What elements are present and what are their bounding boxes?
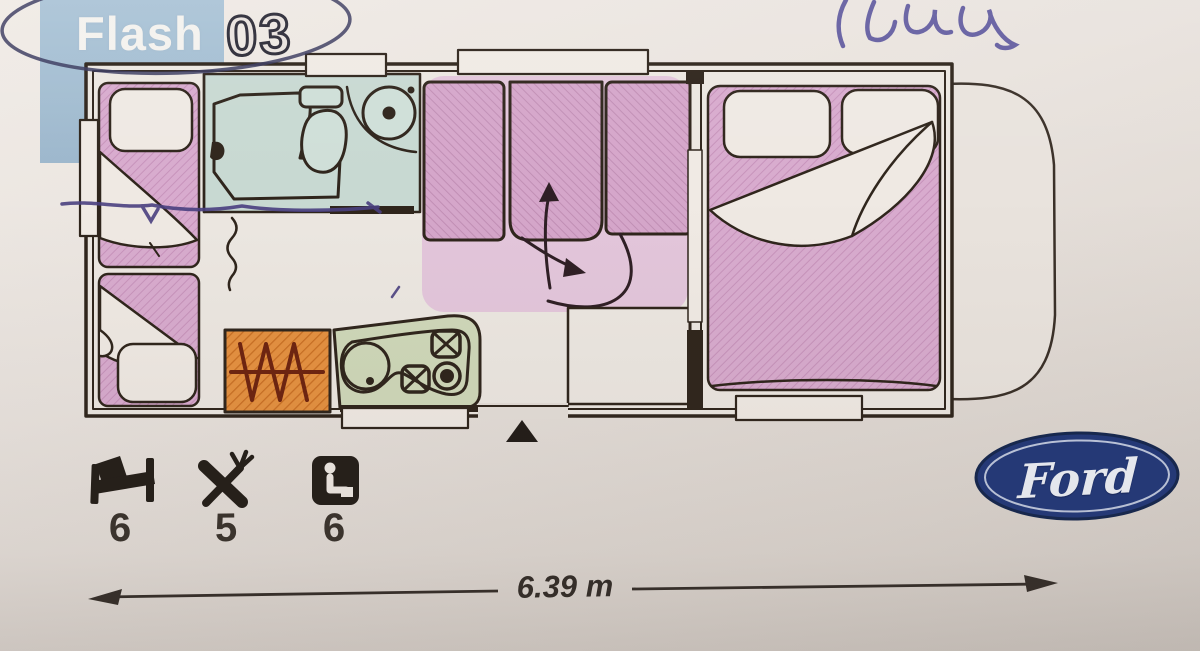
sliding-door xyxy=(688,150,702,322)
tap-dot xyxy=(408,87,415,94)
kitchen xyxy=(225,316,480,412)
dinette-seat-middle xyxy=(510,82,602,240)
bed-icon xyxy=(90,456,155,504)
seat-icon xyxy=(312,456,359,505)
bed-pillow-left xyxy=(724,91,830,157)
rear-double-bed xyxy=(708,86,940,390)
entry-door xyxy=(478,403,568,442)
toilet-bowl xyxy=(302,110,347,172)
dinette-seat-right xyxy=(606,82,692,234)
window-left-bunks xyxy=(80,120,98,236)
window-bottom-kitchen xyxy=(342,408,468,428)
dining-count: 5 xyxy=(196,505,257,551)
entry-door-marker xyxy=(506,420,538,442)
bunk-beds xyxy=(99,74,204,406)
window-bottom-bed xyxy=(736,396,862,420)
basin-drain xyxy=(383,107,396,120)
dinette-seat-left xyxy=(424,82,504,240)
arrowhead-left xyxy=(88,589,122,605)
ford-wordmark: Ford xyxy=(1007,448,1150,511)
toilet-cistern xyxy=(300,87,342,107)
spec-icons xyxy=(90,452,359,505)
wardrobe xyxy=(568,308,690,404)
length-dimension-label: 6.39 m xyxy=(500,568,631,606)
cutlery-icon xyxy=(204,452,252,503)
window-top-dinette xyxy=(458,50,648,74)
floorplan xyxy=(80,50,1055,442)
cab-outline xyxy=(946,84,1055,400)
arrowhead-right xyxy=(1024,575,1058,592)
window-top-washroom xyxy=(306,54,386,76)
partition-wall xyxy=(686,72,704,408)
bunk-upper-pillow xyxy=(110,89,192,151)
floorplan-canvas xyxy=(0,0,1200,651)
handwriting-scribble xyxy=(839,0,1015,48)
bunk-lower-pillow xyxy=(118,344,196,402)
dinette xyxy=(422,76,692,312)
seats-count: 6 xyxy=(304,505,365,551)
berths-count: 6 xyxy=(90,505,151,551)
brochure-page: { "header": { "model_series": "Flash", "… xyxy=(0,0,1200,651)
sink-drain xyxy=(366,377,374,385)
